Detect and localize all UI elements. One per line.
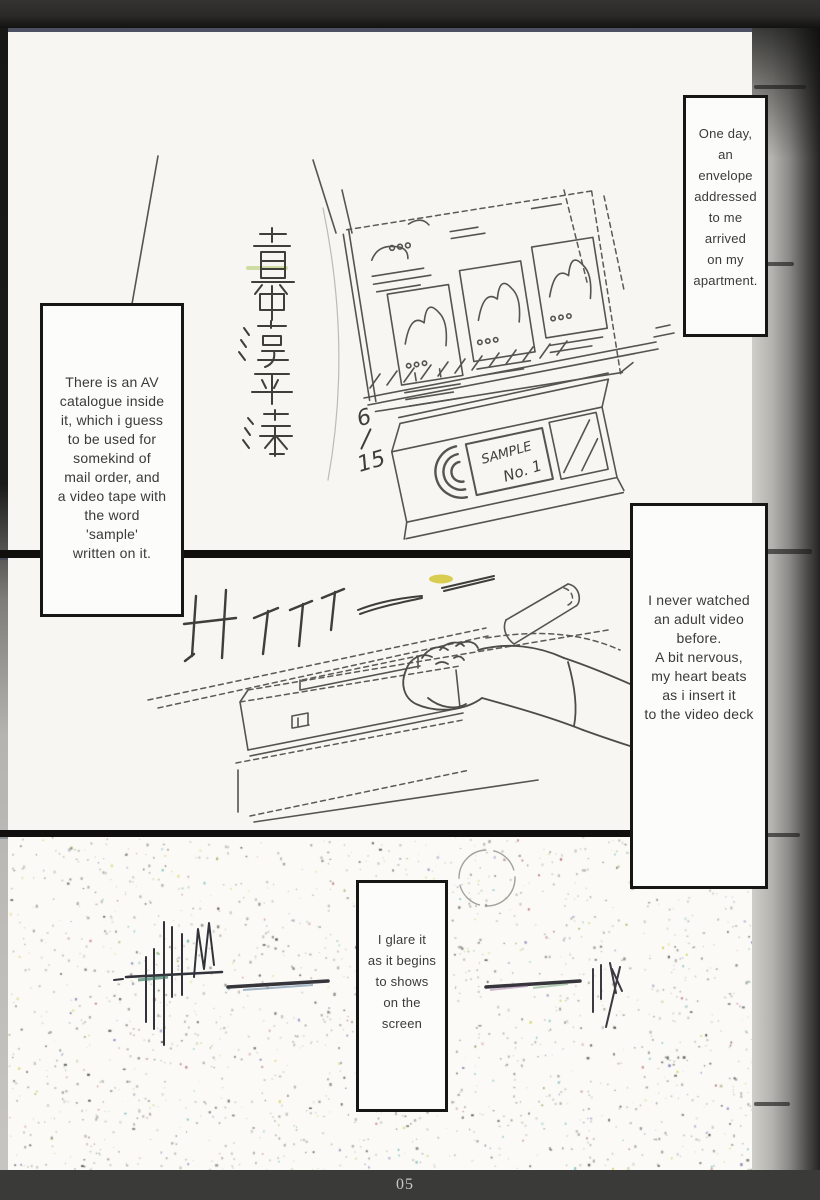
caption-box-never-watched: I never watched an adult video before. A… [630, 503, 768, 889]
sfx-whir-sketch [184, 575, 494, 662]
caption-box-one-day: One day, an envelope addressed to me arr… [683, 95, 768, 337]
caption-box-glare: I glare it as it begins to shows on the … [356, 880, 448, 1112]
manga-page: SAMPLE No. 1 6 15 [0, 0, 820, 1200]
static-glitch-left [114, 922, 222, 1045]
page-footer-bar: 05 [0, 1170, 820, 1200]
static-glitch-right [593, 963, 622, 1027]
tape-date-mark: 6 15 [342, 404, 388, 478]
scan-left-edge [0, 28, 8, 1170]
catalogue-sketch [343, 189, 635, 413]
scan-top-edge [0, 0, 820, 28]
svg-text:6: 6 [354, 404, 374, 432]
video-deck-sketch [148, 628, 620, 822]
address-calligraphy [239, 228, 294, 456]
caption-text: There is an AV catalogue inside it, whic… [58, 373, 166, 563]
yellow-highlight-mark [429, 575, 453, 584]
caption-text: I never watched an adult video before. A… [644, 591, 753, 724]
svg-text:15: 15 [355, 446, 389, 478]
caption-text: I glare it as it begins to shows on the … [368, 929, 436, 1034]
spine-page-mark [754, 1102, 790, 1106]
spine-page-mark [754, 85, 806, 89]
envelope-edge-lines [132, 156, 674, 480]
page-number: 05 [396, 1176, 414, 1194]
caption-box-av-catalogue: There is an AV catalogue inside it, whic… [40, 303, 184, 617]
caption-text: One day, an envelope addressed to me arr… [693, 123, 757, 291]
static-circle-sketch [459, 850, 515, 906]
